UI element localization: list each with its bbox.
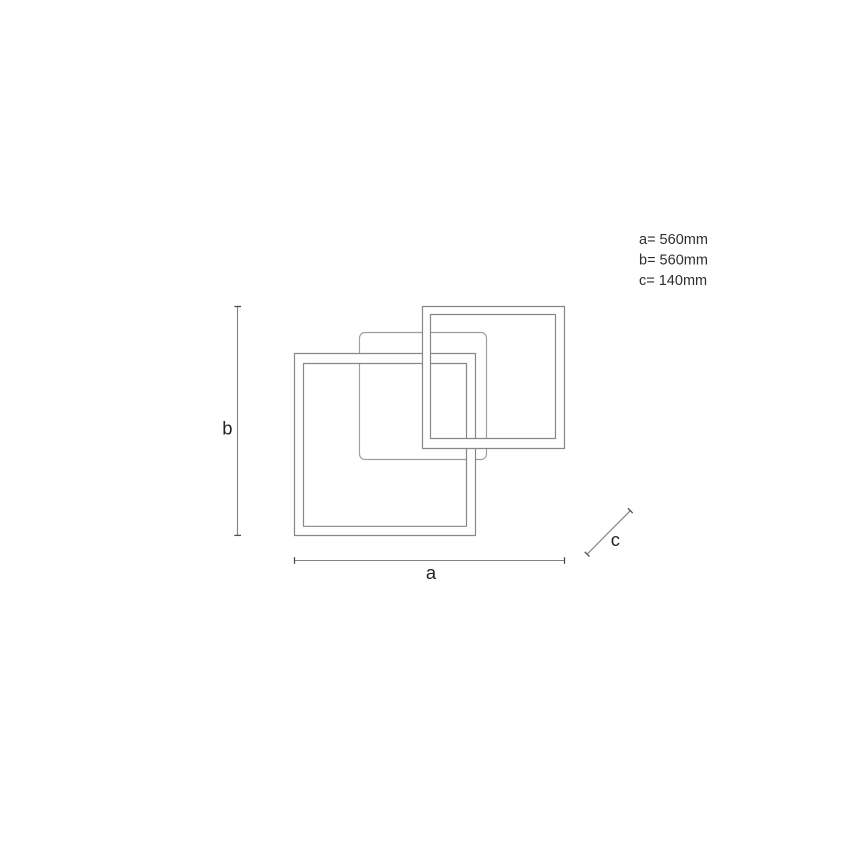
svg-text:a= 560mm: a= 560mm: [639, 232, 708, 248]
svg-text:c= 140mm: c= 140mm: [639, 273, 707, 289]
svg-text:c: c: [611, 529, 620, 550]
svg-text:a: a: [426, 562, 437, 583]
svg-text:b= 560mm: b= 560mm: [639, 253, 708, 269]
svg-text:b: b: [222, 417, 232, 438]
